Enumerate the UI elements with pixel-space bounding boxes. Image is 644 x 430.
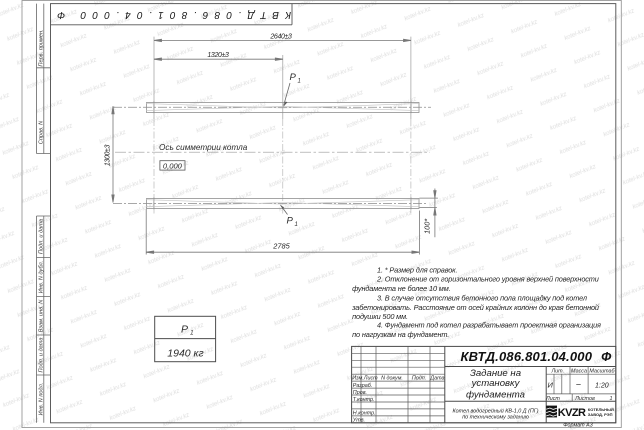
svg-text:1:20: 1:20 <box>595 382 609 389</box>
svg-text:Масса: Масса <box>571 368 587 374</box>
svg-text:Инв. N подл.: Инв. N подл. <box>38 383 44 416</box>
svg-text:Справ. N: Справ. N <box>38 120 44 144</box>
svg-text:Инв. N дубл.: Инв. N дубл. <box>38 261 44 293</box>
svg-text:фундамента не более 10 мм.: фундамента не более 10 мм. <box>352 284 450 293</box>
svg-text:Утв.: Утв. <box>352 418 365 424</box>
svg-text:100*: 100* <box>423 218 432 234</box>
svg-text:N докум.: N докум. <box>381 376 403 382</box>
svg-text:P: P <box>290 72 297 83</box>
svg-text:КОТЕЛЬНЫЙ: КОТЕЛЬНЫЙ <box>588 407 614 412</box>
svg-text:Пров.: Пров. <box>353 390 367 396</box>
svg-text:1: 1 <box>190 330 194 337</box>
svg-text:И: И <box>548 381 554 390</box>
svg-text:Дата: Дата <box>429 376 444 382</box>
svg-text:KVZR: KVZR <box>558 407 586 419</box>
svg-text:P: P <box>181 324 188 336</box>
svg-text:1320±3: 1320±3 <box>207 52 229 59</box>
svg-text:2640±3: 2640±3 <box>269 34 292 41</box>
svg-text:КВТД.086.801.04.000Ф: КВТД.086.801.04.000Ф <box>460 349 612 364</box>
svg-text:Подп. и дата: Подп. и дата <box>38 337 44 372</box>
svg-text:Формат А3: Формат А3 <box>563 422 593 428</box>
svg-text:Задание на: Задание на <box>470 368 521 379</box>
svg-text:Подп.: Подп. <box>412 376 426 382</box>
svg-text:0,000: 0,000 <box>163 161 183 170</box>
svg-text:3. В случае отсутствия бетонно: 3. В случае отсутствия бетонного пола пл… <box>377 293 587 302</box>
svg-text:забетонировать. Расстояние от: забетонировать. Расстояние от осей крайн… <box>351 303 599 312</box>
svg-text:Масштаб: Масштаб <box>589 368 615 374</box>
svg-text:Разраб.: Разраб. <box>353 383 373 389</box>
svg-text:Листов: Листов <box>574 396 595 402</box>
svg-text:установку: установку <box>471 378 521 389</box>
svg-text:ЗАВОД, РЭП: ЗАВОД, РЭП <box>588 412 613 417</box>
svg-text:Перв. примен.: Перв. примен. <box>38 29 44 66</box>
svg-text:1: 1 <box>295 222 298 228</box>
svg-text:1940 кг: 1940 кг <box>167 348 203 360</box>
svg-text:4. Фундамент под котел разраба: 4. Фундамент под котел разрабатывает про… <box>377 321 601 330</box>
svg-text:1: 1 <box>298 79 301 85</box>
svg-text:Изм.Лист: Изм.Лист <box>352 376 378 382</box>
svg-text:1. * Размер для справок.: 1. * Размер для справок. <box>377 265 458 274</box>
svg-text:P: P <box>287 216 294 227</box>
svg-text:Лист: Лист <box>545 396 560 402</box>
svg-text:Взам. инв. N: Взам. инв. N <box>38 299 44 333</box>
svg-text:Лит.: Лит. <box>550 368 564 374</box>
svg-text:1300±3: 1300±3 <box>104 144 111 166</box>
svg-text:Т.контр.: Т.контр. <box>353 397 375 403</box>
svg-text:2785: 2785 <box>272 241 290 250</box>
svg-text:КВТД.086.801.04.000 Ф: КВТД.086.801.04.000 Ф <box>51 9 291 20</box>
svg-text:2. Отклонение от горизонтально: 2. Отклонение от горизонтального уровня … <box>376 275 599 284</box>
svg-text:фундамента: фундамента <box>466 390 525 401</box>
svg-text:Н.контр.: Н.контр. <box>353 411 376 417</box>
svg-text:Котел водогрейный КВ-1,0 Д (ПГ: Котел водогрейный КВ-1,0 Д (ПГ) <box>452 407 538 414</box>
svg-text:Подп. и дата: Подп. и дата <box>38 219 44 254</box>
svg-text:–: – <box>575 380 581 389</box>
svg-text:Ось симметрии котла: Ось симметрии котла <box>159 143 248 152</box>
svg-text:1: 1 <box>610 396 613 402</box>
svg-text:по техническому заданию: по техническому заданию <box>462 415 529 421</box>
svg-text:по нагрузкам на фундамент.: по нагрузкам на фундамент. <box>352 330 449 339</box>
